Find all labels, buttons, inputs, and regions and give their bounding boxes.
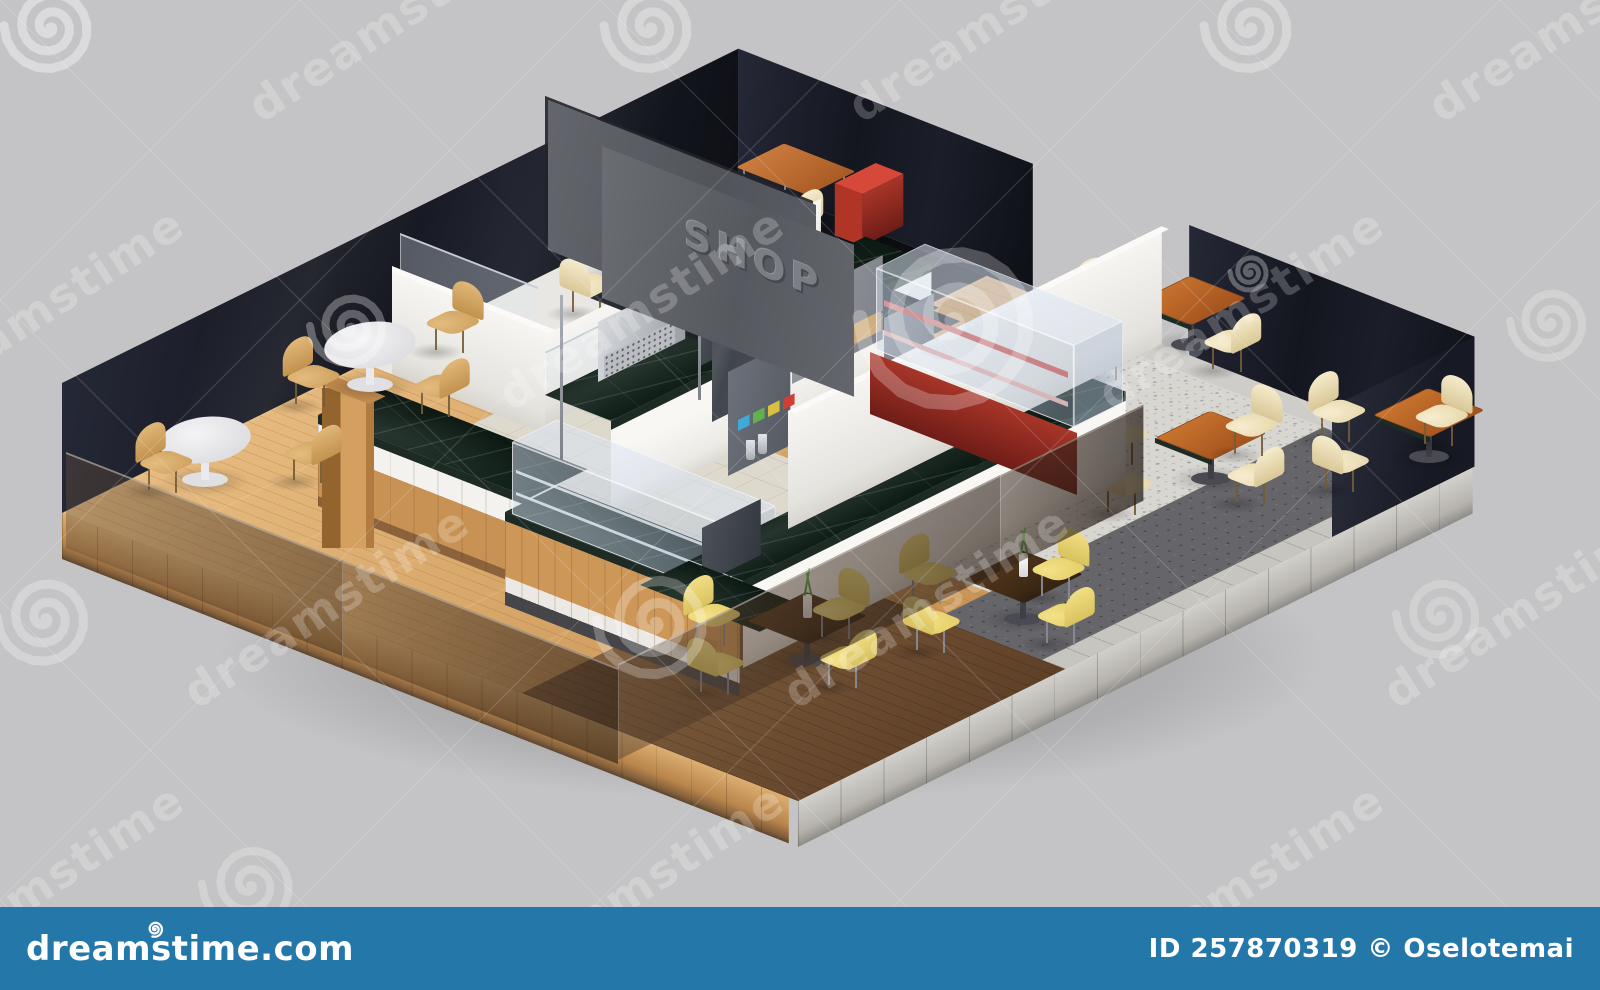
spiral-icon bbox=[150, 922, 162, 936]
red-stool-front bbox=[835, 183, 863, 246]
footer-bar: dreamstime.com ID 257870319 © Oselotemai bbox=[0, 907, 1600, 990]
dreamstime-logo: dreamstime.com bbox=[26, 932, 354, 966]
stock-photo-page: SHOP dreamstimedreamstimedreamstimedream… bbox=[0, 0, 1600, 990]
spiral-icon bbox=[145, 919, 165, 939]
wood-column bbox=[322, 388, 374, 548]
sign-post bbox=[560, 295, 563, 460]
image-credit: ID 257870319 © Oselotemai bbox=[1149, 934, 1574, 964]
shop-sign-text: SHOP bbox=[684, 210, 823, 309]
dispenser-cup bbox=[746, 440, 755, 460]
dispenser-cup bbox=[758, 434, 767, 454]
isometric-cafe-scene bbox=[0, 0, 1600, 990]
dreamstime-logo-text: dreamstime.com bbox=[26, 932, 354, 966]
